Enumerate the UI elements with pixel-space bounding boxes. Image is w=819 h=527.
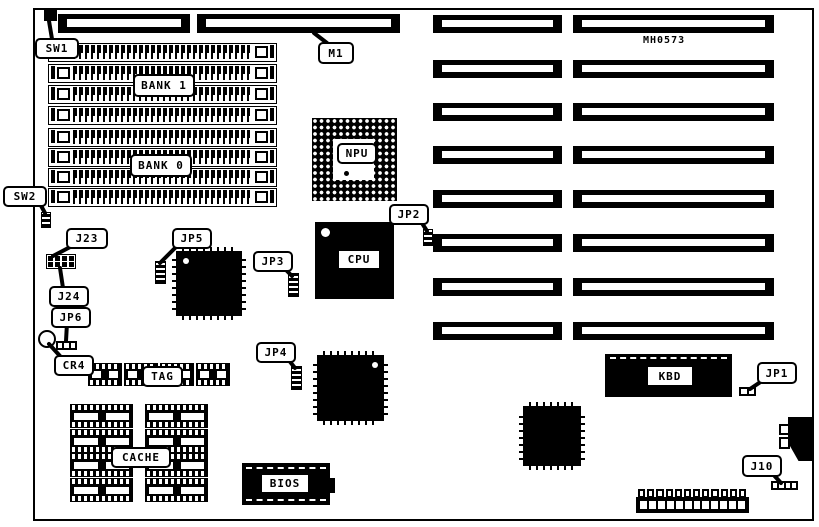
jp4-label: JP4 <box>265 347 288 358</box>
din-pin-box-1 <box>779 424 790 435</box>
kbd-dashline <box>610 357 727 359</box>
tag-ram-chip-4 <box>196 363 230 386</box>
jp5-callout: JP5 <box>172 228 212 249</box>
m1-callout: M1 <box>318 42 354 64</box>
expansion-slot-long-6 <box>573 234 774 252</box>
chipset-qfp-3 <box>523 406 581 466</box>
jp6-callout: JP6 <box>51 307 91 328</box>
power-connector-body <box>636 497 749 513</box>
sw2-label: SW2 <box>14 191 37 202</box>
j23-label: J23 <box>76 233 99 244</box>
sw1-switch <box>44 10 57 21</box>
power-pin-12 <box>738 501 745 509</box>
cache-ram-chip-8 <box>145 478 208 502</box>
bios-dashline-top <box>246 467 326 469</box>
chipset-qfp-2-pins-right <box>384 361 388 415</box>
motherboard-diagram: MH0573 NPU CPU KBD BIOS <box>0 0 819 527</box>
jp3-header <box>288 273 299 297</box>
bank1-callout: BANK 1 <box>133 74 195 97</box>
bios-label: BIOS <box>260 473 310 494</box>
expansion-slot-long-4 <box>573 146 774 164</box>
cr4-label: CR4 <box>63 360 86 371</box>
jp6-label: JP6 <box>60 312 83 323</box>
j24-label: J24 <box>58 291 81 302</box>
power-pin-2 <box>649 501 656 509</box>
cpu-label: CPU <box>337 249 381 270</box>
chipset-qfp-3-pins-bottom <box>529 466 575 470</box>
expansion-slot-short-1 <box>433 15 562 33</box>
chipset-qfp-1-pins-right <box>242 257 246 310</box>
npu-label-text: NPU <box>346 148 369 159</box>
sw2-header <box>41 212 51 228</box>
chipset-qfp-3-pins-right <box>581 412 585 460</box>
m1-slot-1 <box>58 14 190 33</box>
j10-callout: J10 <box>742 455 782 477</box>
cache-ram-chip-1 <box>70 404 133 428</box>
cache-ram-chip-5 <box>145 404 208 428</box>
chipset-qfp-2-pins-bottom <box>323 421 378 425</box>
j10-label: J10 <box>751 461 774 472</box>
cpu-pin1-dot <box>321 228 330 237</box>
j23-j24-header <box>46 254 76 269</box>
j23-callout: J23 <box>66 228 108 249</box>
sw1-callout: SW1 <box>35 38 79 59</box>
jp5-header <box>155 261 166 284</box>
bank1-label: BANK 1 <box>141 80 187 91</box>
jp6-header <box>56 341 77 350</box>
expansion-slot-long-7 <box>573 278 774 296</box>
power-pin-7 <box>694 501 701 509</box>
power-pin-11 <box>729 501 736 509</box>
tag-callout: TAG <box>142 366 183 387</box>
expansion-slot-short-6 <box>433 234 562 252</box>
bank0-simm-4 <box>48 188 277 207</box>
power-pin-9 <box>711 501 718 509</box>
tag-label: TAG <box>151 371 174 382</box>
expansion-slot-long-1 <box>573 15 774 33</box>
npu-pin1-mark <box>344 171 349 176</box>
cr4-diode <box>38 330 56 348</box>
m1-slot-2 <box>197 14 400 33</box>
power-pin-5 <box>676 501 683 509</box>
jp3-label: JP3 <box>262 256 285 267</box>
chipset-qfp-1-pins-left <box>172 257 176 310</box>
jp5-label: JP5 <box>181 233 204 244</box>
expansion-slot-short-2 <box>433 60 562 78</box>
expansion-slot-short-7 <box>433 278 562 296</box>
chipset-qfp-2-pin1-dot <box>372 362 378 368</box>
chipset-qfp-3-pins-top <box>529 402 575 406</box>
cache-ram-chip-4 <box>70 478 133 502</box>
chipset-qfp-3-pins-left <box>519 412 523 460</box>
jp2-callout: JP2 <box>389 204 429 225</box>
bank0-callout: BANK 0 <box>130 154 192 177</box>
chipset-qfp-1-pins-bottom <box>182 316 236 320</box>
power-pin-8 <box>702 501 709 509</box>
bios-dashline-bottom <box>246 499 326 501</box>
j24-callout: J24 <box>49 286 89 307</box>
jp1-label: JP1 <box>766 368 789 379</box>
sw2-callout: SW2 <box>3 186 47 207</box>
kbd-label: KBD <box>646 365 694 387</box>
jp3-callout: JP3 <box>253 251 293 272</box>
jp2-header <box>423 229 433 246</box>
bios-tab <box>330 478 335 493</box>
jp1-callout: JP1 <box>757 362 797 384</box>
board-marking: MH0573 <box>643 35 685 46</box>
bios-label-text: BIOS <box>270 478 301 489</box>
power-pin-1 <box>640 501 647 509</box>
expansion-slot-long-3 <box>573 103 774 121</box>
expansion-slot-short-5 <box>433 190 562 208</box>
power-pin-10 <box>720 501 727 509</box>
expansion-slot-short-4 <box>433 146 562 164</box>
din-pin-box-2 <box>779 437 790 449</box>
expansion-slot-long-8 <box>573 322 774 340</box>
bank0-label: BANK 0 <box>138 160 184 171</box>
cache-label: CACHE <box>122 452 160 463</box>
cpu-label-text: CPU <box>348 254 371 265</box>
power-pin-3 <box>658 501 665 509</box>
expansion-slot-long-2 <box>573 60 774 78</box>
expansion-slot-short-3 <box>433 103 562 121</box>
chipset-qfp-2-pins-top <box>323 351 378 355</box>
sw1-label: SW1 <box>46 43 69 54</box>
kbd-label-text: KBD <box>659 371 682 382</box>
chipset-qfp-1-pin1-dot <box>183 258 189 264</box>
jp4-header <box>291 366 302 390</box>
bank0-simm-1 <box>48 128 277 147</box>
bank1-simm-1 <box>48 43 277 62</box>
power-pin-4 <box>667 501 674 509</box>
expansion-slot-short-8 <box>433 322 562 340</box>
j10-header <box>771 481 798 490</box>
expansion-slot-long-5 <box>573 190 774 208</box>
bank1-simm-4 <box>48 106 277 125</box>
jp2-label: JP2 <box>398 209 421 220</box>
jp1-header <box>739 387 756 396</box>
cache-callout: CACHE <box>111 447 171 468</box>
npu-label: NPU <box>337 143 377 164</box>
power-pin-6 <box>685 501 692 509</box>
cr4-callout: CR4 <box>54 355 94 376</box>
chipset-qfp-2-pins-left <box>313 361 317 415</box>
jp4-callout: JP4 <box>256 342 296 363</box>
m1-label: M1 <box>328 48 343 59</box>
